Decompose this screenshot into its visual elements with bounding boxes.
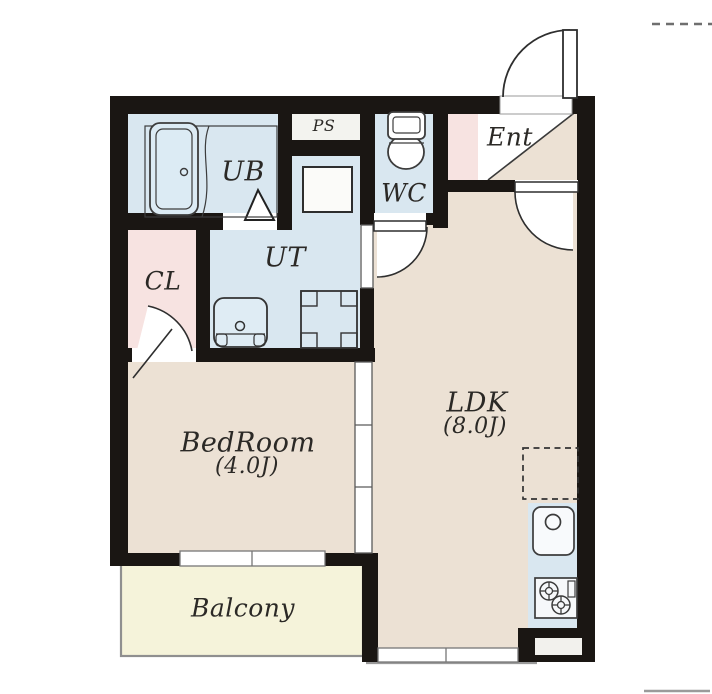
ldk-bottom-window bbox=[378, 648, 518, 662]
bedroom-label: BedRoom bbox=[180, 430, 315, 457]
ub-label: UB bbox=[221, 159, 265, 186]
wall-ps-bottom bbox=[285, 140, 365, 156]
cl-label: CL bbox=[145, 269, 182, 294]
ent-pink-strip bbox=[448, 110, 478, 180]
entrance-opening bbox=[500, 96, 572, 114]
storage-box-icon bbox=[303, 167, 352, 212]
ut-label: UT bbox=[264, 245, 306, 272]
wall-ldk-left-lower bbox=[362, 553, 378, 662]
wc-label: WC bbox=[381, 181, 427, 206]
wall-wc-right bbox=[433, 107, 448, 228]
wall-ut-wc-divider bbox=[360, 96, 375, 225]
ps-label: PS bbox=[313, 118, 336, 134]
wall-right bbox=[577, 96, 595, 662]
balcony-label: Balcony bbox=[191, 596, 295, 621]
ut-sliding-door bbox=[361, 225, 373, 288]
floorplan-canvas: UB PS WC Ent UT CL BedRoom (4.0J) LDK (8… bbox=[0, 0, 712, 694]
toilet-icon bbox=[388, 112, 425, 169]
gas-stove-icon bbox=[535, 578, 577, 618]
wall-ut-right-lower bbox=[360, 288, 374, 350]
bedroom-balcony-window bbox=[180, 551, 325, 566]
wall-left bbox=[110, 96, 128, 566]
wall-ent-bottom bbox=[448, 180, 515, 192]
kitchen-wall-niche bbox=[535, 638, 582, 655]
bedroom-sliding-partition bbox=[355, 362, 372, 553]
entrance-door-icon bbox=[503, 30, 577, 98]
ldk-area-label: (8.0J) bbox=[443, 416, 507, 438]
floorplan-drawing bbox=[0, 0, 712, 694]
kitchen-sink-icon bbox=[533, 507, 574, 555]
wall-cl-right bbox=[196, 222, 210, 348]
ent-label: Ent bbox=[487, 125, 533, 150]
vanity-basin-icon bbox=[214, 298, 267, 347]
bedroom-area-label: (4.0J) bbox=[215, 456, 279, 478]
ldk-label: LDK bbox=[446, 390, 507, 417]
